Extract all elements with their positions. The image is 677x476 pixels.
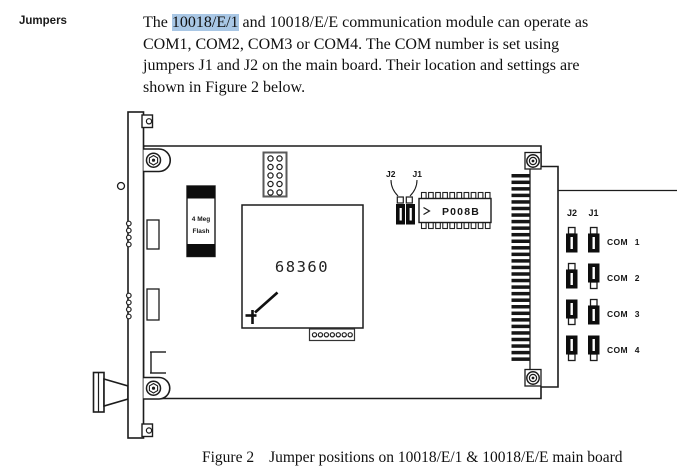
figure-caption-text: Jumper positions on 10018/E/1 & 10018/E/… (269, 449, 622, 466)
onboard-j2-label: J2 (386, 169, 396, 179)
edge-cutout-1 (147, 220, 159, 249)
onboard-j1-label: J1 (413, 169, 423, 179)
edge-cutout-2 (147, 289, 159, 320)
legend-com-label: COM 4 (607, 345, 640, 355)
pin-header-1x7 (310, 329, 355, 341)
connector-screw-top (525, 153, 541, 170)
cpu-chip-label: 68360 (275, 258, 329, 276)
legend-row: COM 3 (566, 300, 640, 325)
flash-chip-label-line1: 4 Meg (192, 216, 210, 223)
legend-com-label: COM 3 (607, 309, 640, 319)
pin-header-2x5 (264, 153, 287, 197)
cpu-chip-68360: 68360 (242, 205, 363, 328)
figure-caption: Figure 2Jumper positions on 10018/E/1 & … (202, 449, 623, 467)
flash-chip: 4 Meg Flash (187, 186, 215, 257)
legend-row: COM 2 (566, 264, 640, 289)
legend-row: COM 1 (566, 228, 640, 253)
legend-j2-header: J2 (567, 208, 577, 218)
figure-board-diagram: 4 Meg Flash 68360 J2 J1 (0, 0, 677, 476)
legend-com-label: COM 1 (607, 237, 640, 247)
bracket-screw-top (144, 149, 171, 172)
figure-caption-label: Figure 2 (202, 449, 254, 466)
led-hole (118, 183, 125, 190)
eprom-chip: P008B (419, 193, 491, 229)
legend-com-label: COM 2 (607, 273, 640, 283)
legend-row: COM 4 (566, 336, 640, 361)
flash-chip-label-line2: Flash (193, 228, 210, 235)
ejector-handle-neck (104, 379, 128, 406)
connector-screw-bottom (525, 370, 541, 387)
bracket-screw-bottom (144, 378, 170, 400)
manual-page: Jumpers The 10018/E/1 and 10018/E/E comm… (0, 0, 677, 476)
jumper-legend: J2 J1 COM 1COM 2COM 3COM 4 (566, 208, 640, 361)
edge-connector (512, 174, 530, 361)
eprom-chip-label: P008B (442, 206, 480, 218)
legend-j1-header: J1 (589, 208, 599, 218)
